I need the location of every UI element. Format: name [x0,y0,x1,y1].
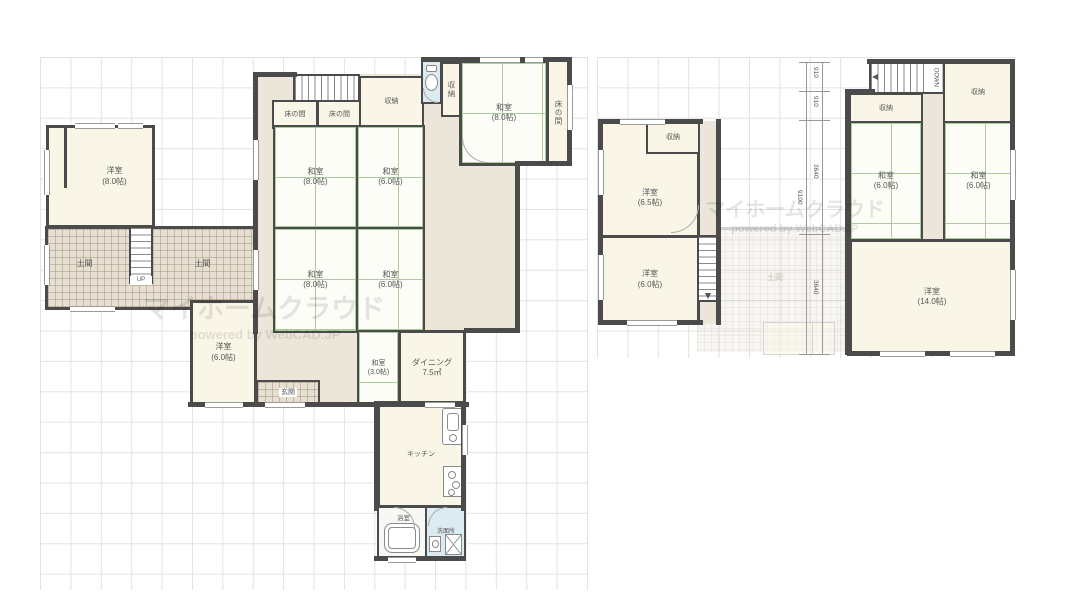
window [620,119,665,125]
room-label: 和室 (6.0帖) [945,123,1012,239]
watermark-text: マイホームクラウド [143,294,385,324]
closet-2f-b: 収納 [849,93,923,124]
room-label: ダイニング 7.5㎡ [401,333,463,403]
room-name: ダイニング [412,358,452,368]
room-name: 収納 [971,88,985,97]
room-size: (3.0帖) [368,368,389,377]
window [70,306,115,312]
room-name: 洋室 [107,166,123,176]
closet-2f-c: 収納 [943,61,1013,125]
burner [452,481,460,489]
window [265,402,305,408]
stairs-1f-top [293,74,360,102]
dimension-label-3640-a: 3640 [812,164,819,178]
room-label: 洋室 (14.0帖) [852,242,1012,352]
dimension-tick [799,120,830,121]
room-label: 収納 [648,123,698,152]
burner [448,489,455,496]
room-label: 玄関 [258,382,318,403]
dimension-label-3640-b: 3640 [812,280,819,294]
closet-2f-a: 収納 [646,121,700,154]
window [388,557,416,563]
closet-hall: 収納 [359,76,424,127]
wall [461,401,466,511]
stairs-up-text: UP [137,277,145,283]
room-name: 和室 [496,103,512,113]
room-size: 7.5㎡ [422,368,441,378]
room-name: 床の間 [329,110,350,119]
window [205,402,243,408]
room-label: 洋室 (6.0帖) [603,238,697,321]
room-name: 土間 [195,259,211,268]
room-name: 和室 [383,167,399,177]
toilet-tank [426,65,437,72]
room-name: 和室 [372,359,386,368]
room-name: 土間 [77,259,93,268]
wall [464,328,520,333]
room-western-14: 洋室 (14.0帖) [849,239,1015,355]
stairs-down-label: DOWN [929,63,942,92]
watermark-text: powered by WebCAD.JP [731,223,859,235]
window [44,245,50,285]
dimension-tick [799,62,830,63]
window [880,351,925,357]
room-size: (8.0帖) [303,177,327,187]
room-japanese-6-a: 和室 (6.0帖) [356,125,425,229]
watermark-subtitle-1f: powered by WebCAD.JP [138,327,392,342]
dimension-tick [799,354,830,355]
room-size: (8.0帖) [102,177,126,187]
room-name: 洋室 [642,269,658,279]
window [598,255,604,300]
doma-left-label: 土間 [62,258,107,270]
sink-faucet [449,434,457,442]
stairs-up-label: UP [130,276,152,285]
room-name: 床の間 [553,100,564,126]
dimension-label-910-a: 910 [812,67,819,78]
window [950,351,995,357]
room-label: 床の間 [549,62,568,164]
washing-machine-icon [445,534,462,555]
watermark-text: powered by WebCAD.JP [190,327,341,342]
room-name: 洋室 [924,287,940,297]
window [1010,270,1016,320]
window [567,85,573,130]
ghost-room [763,322,835,355]
window [425,402,455,408]
doma-right-label: 土間 [180,258,225,270]
window [627,320,677,326]
wall [716,119,721,325]
dimension-tick [799,91,830,92]
window [44,150,50,195]
room-name: 土間 [767,273,783,282]
window [1010,150,1016,200]
room-name: 床の間 [285,110,306,119]
room-name: 和室 [383,270,399,280]
room-label: 収納 [443,64,460,115]
room-name: 和室 [971,171,987,181]
watermark-subtitle-2f: powered by WebCAD.JP [713,223,877,235]
window [525,57,543,63]
room-name: キッチン [407,450,435,459]
room-name: 洋室 [216,342,232,352]
stairs-arrow-left [872,74,878,80]
watermark-title-1f: マイホームクラウド [118,287,410,326]
washroom-sink-icon [429,536,441,552]
room-name: 玄関 [279,388,297,397]
window [253,250,259,290]
wall [515,161,520,333]
room-western-6-2f: 洋室 (6.0帖) [600,235,700,324]
room-label: 床の間 [319,102,360,127]
window [480,57,520,63]
watermark-text: マイホームクラウド [705,199,884,221]
room-size: (6.5帖) [638,198,662,208]
room-dining: ダイニング 7.5㎡ [398,330,466,406]
room-label: 収納 [945,63,1011,123]
room-western-8: 洋室 (8.0帖) [46,125,155,228]
room-label: 和室 (8.0帖) [275,127,356,227]
burner [448,471,456,479]
room-name: 収納 [385,97,399,106]
room-name: 収納 [446,81,457,98]
room-size: (6.0帖) [638,280,662,290]
stove-icon [443,466,463,497]
window [75,123,115,129]
window [253,140,259,180]
wall [64,128,67,188]
window [598,150,604,195]
dimension-label-910-b: 910 [812,96,819,107]
ghost-wall [812,322,813,355]
stairs-arrow-down [705,293,711,299]
room-name: 洋室 [642,188,658,198]
room-label: 収納 [851,95,921,122]
room-label: 和室 (6.0帖) [358,127,423,227]
room-label: 和室 (3.0帖) [359,332,398,404]
wall [845,89,850,355]
ghost-doma-label: 土間 [757,272,793,284]
wall [253,72,297,77]
room-size: (6.0帖) [378,177,402,187]
room-name: 和室 [308,270,324,280]
room-size: (8.0帖) [492,113,516,123]
stairs-down-text: DOWN [929,63,942,92]
floorplan-canvas: 洋室 (8.0帖) 土間 土間 UP 洋室 (6.0帖) 玄関 床の間 床の間 … [0,0,1085,612]
room-size: (6.0帖) [211,353,235,363]
sink-basin [447,413,459,431]
room-name: 和室 [308,167,324,177]
sink-bowl [432,540,439,548]
room-size: (6.0帖) [874,181,898,191]
wall [374,401,379,511]
room-japanese-6-east: 和室 (6.0帖) [943,121,1014,241]
watermark-title-2f: マイホームクラウド [693,193,897,222]
room-label: 収納 [361,78,422,125]
room-name: 収納 [879,104,893,113]
wall [867,59,1015,64]
window [118,123,143,129]
kitchen-sink-icon [442,408,463,445]
room-name: 収納 [666,133,680,142]
wall [515,161,572,166]
room-label: 床の間 [274,102,316,127]
window [462,425,468,455]
room-size: (6.0帖) [966,181,990,191]
room-size: (14.0帖) [918,297,947,307]
room-japanese-8-a: 和室 (8.0帖) [273,125,358,229]
room-name: 和室 [878,171,894,181]
